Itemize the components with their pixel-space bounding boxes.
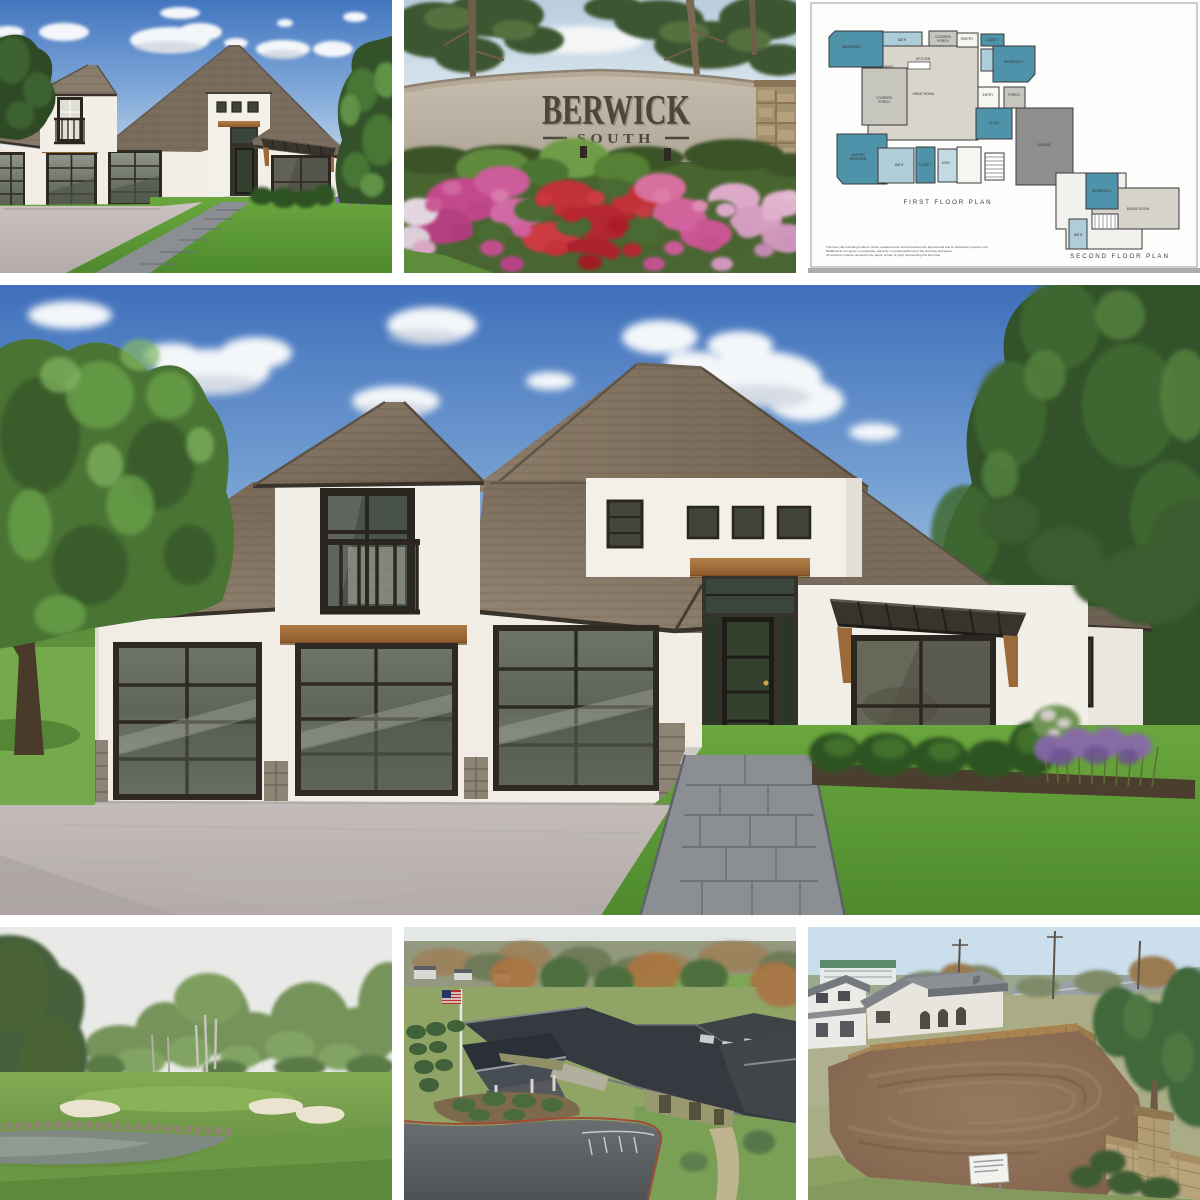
svg-text:DINING: DINING xyxy=(882,65,894,69)
svg-text:BEDROOM 4: BEDROOM 4 xyxy=(1092,189,1111,193)
svg-text:BONUS ROOM: BONUS ROOM xyxy=(1127,207,1149,211)
svg-text:FIRST FLOOR PLAN: FIRST FLOOR PLAN xyxy=(903,199,992,206)
svg-text:BATH: BATH xyxy=(895,163,904,167)
svg-text:SECOND FLOOR PLAN: SECOND FLOOR PLAN xyxy=(1070,253,1170,260)
svg-text:STUDY: STUDY xyxy=(989,121,1001,125)
svg-text:KITCHEN: KITCHEN xyxy=(916,57,931,61)
svg-text:LDRY: LDRY xyxy=(942,161,951,165)
svg-text:CLOSET: CLOSET xyxy=(919,163,932,167)
svg-text:BATH: BATH xyxy=(898,38,907,42)
svg-text:BEDROOM 2: BEDROOM 2 xyxy=(842,45,861,49)
svg-text:All acquirers must be directed: All acquirers must be directed to the ag… xyxy=(826,253,941,257)
svg-text:PANTRY: PANTRY xyxy=(961,37,975,41)
svg-text:BEDROOM: BEDROOM xyxy=(850,157,867,161)
svg-text:ENTRY: ENTRY xyxy=(983,93,995,97)
svg-text:PORCH: PORCH xyxy=(878,100,890,104)
svg-text:BERWICK: BERWICK xyxy=(542,88,690,134)
svg-text:GARAGE: GARAGE xyxy=(1037,143,1051,147)
svg-text:GREAT ROOM: GREAT ROOM xyxy=(912,92,934,96)
svg-text:BEDROOM 3: BEDROOM 3 xyxy=(1004,60,1023,64)
svg-text:CLOSET: CLOSET xyxy=(986,38,999,42)
svg-text:BATH: BATH xyxy=(1074,233,1083,237)
svg-text:PORCH: PORCH xyxy=(1008,93,1020,97)
svg-text:PORCH: PORCH xyxy=(937,39,949,43)
